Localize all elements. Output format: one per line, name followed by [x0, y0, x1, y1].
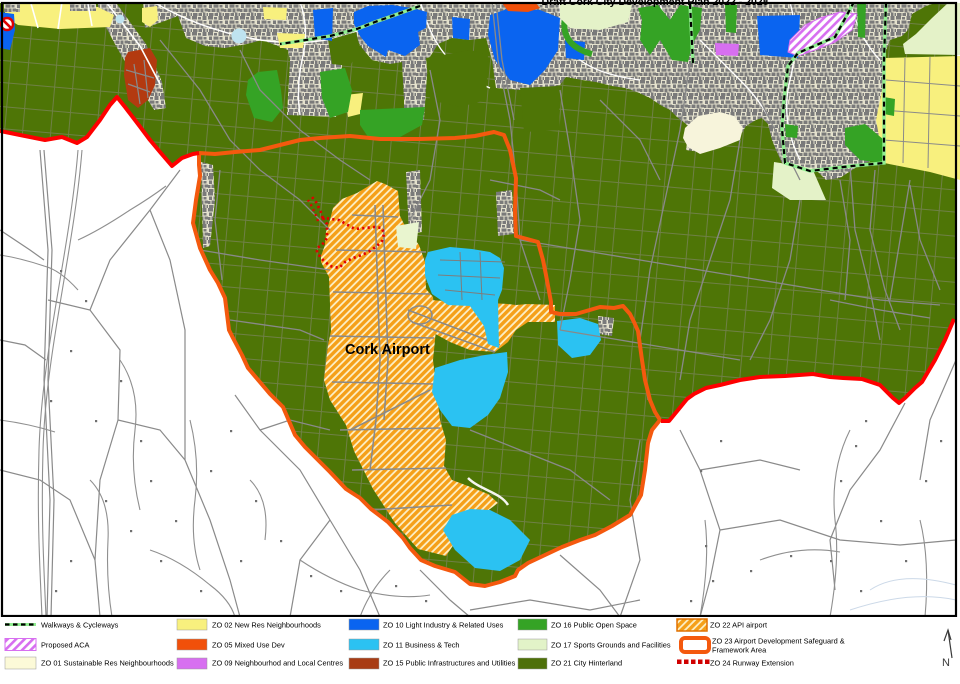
- svg-text:ZO 11 Business & Tech: ZO 11 Business & Tech: [383, 641, 460, 650]
- svg-text:ZO 16 Public Open Space: ZO 16 Public Open Space: [551, 621, 637, 630]
- svg-text:ZO 23 Airport Development Safe: ZO 23 Airport Development Safeguard &: [712, 637, 845, 646]
- svg-text:Walkways & Cycleways: Walkways & Cycleways: [41, 621, 119, 630]
- svg-text:Proposed ACA: Proposed ACA: [41, 641, 90, 650]
- svg-text:Draft Cork City Development Pl: Draft Cork City Development Plan 2022 - …: [541, 0, 768, 8]
- svg-text:ZO 21 City Hinterland: ZO 21 City Hinterland: [551, 659, 622, 668]
- svg-text:ZO 01 Sustainable Res Neighbou: ZO 01 Sustainable Res Neighbourhoods: [41, 659, 174, 668]
- svg-text:ZO 15 Public Infrastructures a: ZO 15 Public Infrastructures and Utiliti…: [383, 659, 516, 668]
- svg-text:Framework Area: Framework Area: [712, 646, 767, 655]
- svg-text:N: N: [942, 657, 950, 669]
- svg-text:ZO 02 New Res Neighbourhoods: ZO 02 New Res Neighbourhoods: [212, 621, 321, 630]
- svg-text:Cork Airport: Cork Airport: [345, 342, 430, 358]
- svg-text:ZO 17 Sports Grounds and Facil: ZO 17 Sports Grounds and Facilities: [551, 641, 671, 650]
- svg-text:ZO 05 Mixed Use Dev: ZO 05 Mixed Use Dev: [212, 641, 285, 650]
- svg-text:ZO 22 API airport: ZO 22 API airport: [710, 621, 767, 630]
- svg-text:ZO 10 Light Industry & Related: ZO 10 Light Industry & Related Uses: [383, 621, 504, 630]
- svg-text:ZO 09 Neighbourhod and Local C: ZO 09 Neighbourhod and Local Centres: [212, 659, 343, 668]
- svg-text:ZO 24 Runway Extension: ZO 24 Runway Extension: [710, 659, 794, 668]
